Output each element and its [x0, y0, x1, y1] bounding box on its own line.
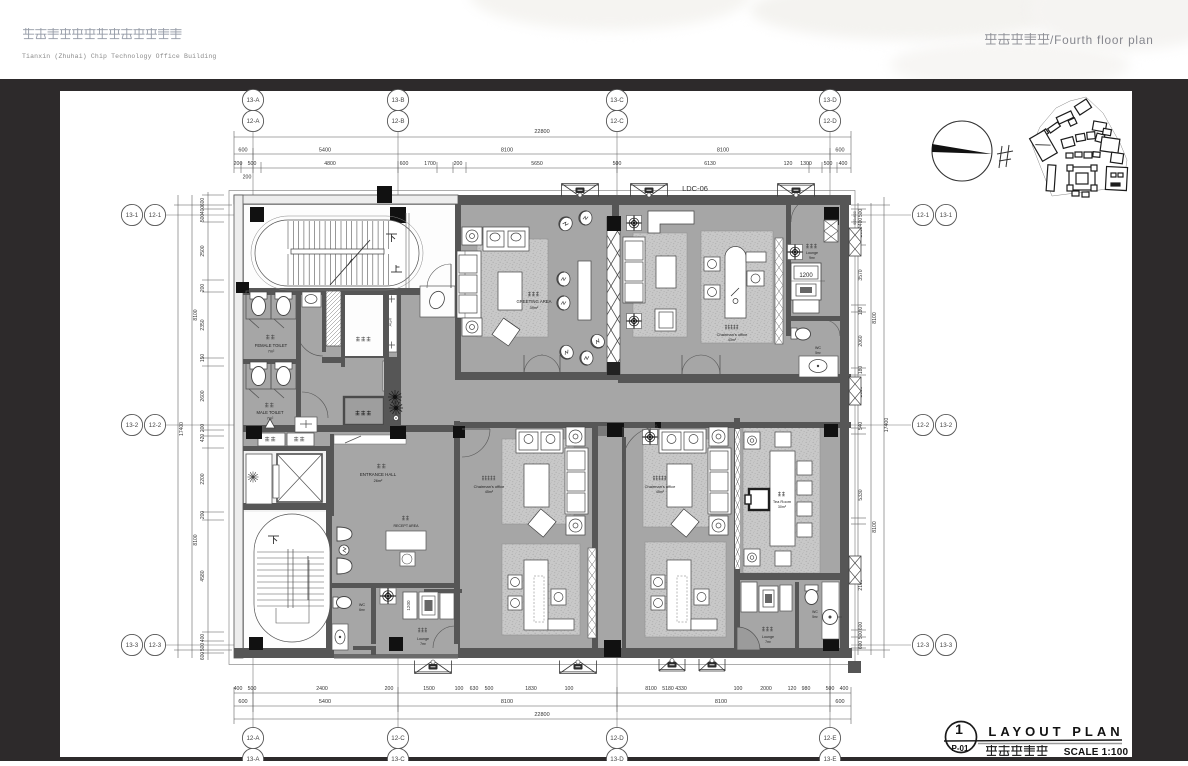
svg-text:600: 600 — [200, 198, 206, 207]
svg-text:12-1: 12-1 — [149, 212, 162, 219]
svg-text:100: 100 — [455, 686, 464, 692]
svg-text:8100: 8100 — [872, 521, 878, 533]
svg-text:500: 500 — [858, 631, 864, 640]
svg-text:12-E: 12-E — [823, 735, 836, 742]
svg-text:12-A: 12-A — [246, 118, 260, 125]
svg-text:/Fourth floor plan: /Fourth floor plan — [1050, 33, 1154, 47]
svg-text:7m²: 7m² — [420, 642, 427, 646]
svg-text:GREETING AREA: GREETING AREA — [516, 299, 551, 304]
svg-text:13-2: 13-2 — [126, 422, 139, 429]
svg-text:500: 500 — [200, 214, 206, 223]
svg-text:13-A: 13-A — [246, 97, 260, 104]
svg-text:12-3: 12-3 — [917, 642, 930, 649]
svg-text:600: 600 — [835, 148, 844, 154]
svg-text:12-C: 12-C — [610, 118, 624, 125]
svg-text:8100: 8100 — [715, 699, 727, 705]
svg-text:2000: 2000 — [760, 686, 772, 692]
svg-text:Chairman’s office: Chairman’s office — [645, 484, 677, 489]
svg-text:1500: 1500 — [423, 686, 435, 692]
svg-text:22800: 22800 — [534, 129, 549, 135]
svg-text:45m²: 45m² — [485, 490, 494, 494]
svg-text:FEMALE TOILET: FEMALE TOILET — [255, 343, 288, 348]
svg-text:500: 500 — [613, 161, 622, 167]
svg-text:WC: WC — [359, 603, 366, 607]
svg-text:150: 150 — [200, 354, 206, 363]
svg-text:13-D: 13-D — [823, 97, 837, 104]
svg-text:200: 200 — [234, 161, 243, 167]
svg-text:ENTRANCE HALL: ENTRANCE HALL — [360, 472, 397, 477]
svg-text:2060: 2060 — [858, 335, 864, 346]
svg-text:500: 500 — [248, 161, 257, 167]
svg-text:200: 200 — [200, 511, 206, 520]
svg-text:2500: 2500 — [200, 245, 206, 256]
svg-text:45m²: 45m² — [656, 490, 665, 494]
svg-text:100: 100 — [734, 686, 743, 692]
svg-text:12-B: 12-B — [391, 118, 404, 125]
svg-text:600: 600 — [400, 161, 409, 167]
svg-text:600: 600 — [835, 699, 844, 705]
svg-text:12-D: 12-D — [823, 118, 837, 125]
svg-text:400: 400 — [200, 634, 206, 643]
svg-text:26m²: 26m² — [374, 479, 383, 483]
svg-text:17400: 17400 — [884, 418, 890, 433]
svg-text:5400: 5400 — [319, 699, 331, 705]
svg-text:1200: 1200 — [406, 600, 411, 611]
svg-text:2350: 2350 — [200, 319, 206, 330]
svg-text:8100: 8100 — [645, 686, 657, 692]
svg-text:39m²: 39m² — [530, 306, 539, 310]
svg-text:12-2: 12-2 — [917, 422, 930, 429]
svg-text:540: 540 — [858, 422, 864, 431]
svg-text:12-D: 12-D — [610, 735, 624, 742]
svg-text:22800: 22800 — [534, 712, 549, 718]
svg-text:6m²: 6m² — [359, 608, 366, 612]
svg-text:400: 400 — [234, 686, 243, 692]
svg-text:2600: 2600 — [200, 390, 206, 401]
svg-text:500: 500 — [858, 209, 864, 218]
svg-text:43m²: 43m² — [728, 338, 737, 342]
svg-text:8100: 8100 — [717, 148, 729, 154]
svg-text:500: 500 — [485, 686, 494, 692]
svg-text:600: 600 — [858, 622, 864, 631]
svg-text:5650: 5650 — [531, 161, 543, 167]
svg-text:5m²: 5m² — [812, 615, 818, 619]
svg-text:500: 500 — [824, 161, 833, 167]
svg-text:Tianxin (Zhuhai) Chip Technolo: Tianxin (Zhuhai) Chip Technology Office … — [22, 53, 216, 60]
svg-text:180: 180 — [858, 307, 864, 316]
svg-text:200: 200 — [200, 424, 206, 433]
svg-text:100: 100 — [565, 686, 574, 692]
svg-text:1300: 1300 — [800, 161, 812, 167]
svg-text:600: 600 — [238, 699, 247, 705]
svg-text:200: 200 — [385, 686, 394, 692]
svg-text:13-D: 13-D — [610, 756, 624, 761]
svg-text:LAYOUT PLAN: LAYOUT PLAN — [988, 724, 1123, 739]
svg-text:1: 1 — [955, 721, 963, 737]
svg-text:12-1: 12-1 — [917, 212, 930, 219]
svg-text:P-01: P-01 — [952, 744, 969, 753]
svg-text:1200: 1200 — [799, 273, 813, 279]
svg-text:7m²: 7m² — [268, 350, 275, 354]
svg-text:600: 600 — [238, 148, 247, 154]
svg-text:400: 400 — [200, 206, 206, 215]
svg-text:12-A: 12-A — [246, 735, 260, 742]
svg-text:400: 400 — [858, 218, 864, 227]
svg-text:8100: 8100 — [193, 309, 199, 320]
svg-text:200: 200 — [243, 175, 252, 181]
svg-text:8100: 8100 — [872, 312, 878, 324]
svg-text:9m²: 9m² — [809, 256, 816, 260]
svg-text:8100: 8100 — [501, 148, 513, 154]
svg-text:Lounge: Lounge — [806, 251, 818, 255]
svg-text:MALE TOILET: MALE TOILET — [256, 410, 284, 415]
svg-text:Tea Room: Tea Room — [773, 499, 792, 504]
svg-text:13-3: 13-3 — [126, 642, 139, 649]
svg-text:500: 500 — [248, 686, 257, 692]
svg-text:17400: 17400 — [179, 422, 185, 436]
svg-text:500: 500 — [200, 643, 206, 652]
svg-text:8100: 8100 — [193, 534, 199, 545]
svg-text:13-2: 13-2 — [940, 422, 953, 429]
svg-text:13-B: 13-B — [391, 97, 404, 104]
svg-text:2400: 2400 — [316, 686, 328, 692]
svg-text:1830: 1830 — [525, 686, 537, 692]
svg-text:12-2: 12-2 — [149, 422, 162, 429]
svg-text:13-3: 13-3 — [940, 642, 953, 649]
svg-text:WC: WC — [812, 610, 818, 614]
svg-text:5180: 5180 — [662, 686, 674, 692]
svg-text:RECEPT AREA: RECEPT AREA — [393, 524, 419, 528]
svg-text:5m²: 5m² — [815, 351, 821, 355]
svg-text:13-C: 13-C — [391, 756, 405, 761]
svg-text:12-C: 12-C — [391, 735, 405, 742]
svg-text:120: 120 — [784, 161, 793, 167]
svg-text:Chairman’s office: Chairman’s office — [474, 484, 506, 489]
svg-text:12-3: 12-3 — [149, 642, 162, 649]
svg-text:1700: 1700 — [424, 161, 436, 167]
svg-text:SCALE 1:100: SCALE 1:100 — [1064, 747, 1129, 758]
svg-text:4580: 4580 — [200, 570, 206, 581]
svg-text:600x600: 600x600 — [853, 211, 857, 224]
svg-text:4800: 4800 — [324, 161, 336, 167]
svg-text:600: 600 — [200, 652, 206, 661]
svg-text:8100: 8100 — [501, 699, 513, 705]
svg-text:7m²: 7m² — [765, 640, 772, 644]
svg-text:200: 200 — [200, 284, 206, 293]
svg-text:180: 180 — [858, 366, 864, 375]
svg-text:13-A: 13-A — [246, 756, 260, 761]
svg-text:Lounge: Lounge — [417, 637, 429, 641]
svg-text:4330: 4330 — [675, 686, 687, 692]
svg-text:420: 420 — [200, 434, 206, 443]
svg-text:5330: 5330 — [858, 489, 864, 500]
svg-text:13-1: 13-1 — [126, 212, 139, 219]
svg-text:LDC-06: LDC-06 — [682, 184, 708, 193]
svg-text:120: 120 — [788, 686, 797, 692]
svg-text:6130: 6130 — [704, 161, 716, 167]
svg-text:400: 400 — [840, 686, 849, 692]
svg-text:30m²: 30m² — [778, 505, 787, 509]
svg-text:980: 980 — [802, 686, 811, 692]
svg-text:5400: 5400 — [319, 148, 331, 154]
svg-text:3570: 3570 — [858, 269, 864, 280]
svg-text:Lounge: Lounge — [762, 635, 774, 639]
svg-text:500: 500 — [826, 686, 835, 692]
svg-text:600: 600 — [858, 641, 864, 650]
svg-text:Chairman’s office: Chairman’s office — [717, 332, 749, 337]
svg-text:WC: WC — [815, 346, 821, 350]
svg-text:200: 200 — [454, 161, 463, 167]
svg-text:13-C: 13-C — [610, 97, 624, 104]
svg-text:2200: 2200 — [200, 473, 206, 484]
svg-text:13-1: 13-1 — [940, 212, 953, 219]
svg-text:13-E: 13-E — [823, 756, 836, 761]
svg-text:630: 630 — [470, 686, 479, 692]
svg-text:400: 400 — [839, 161, 848, 167]
